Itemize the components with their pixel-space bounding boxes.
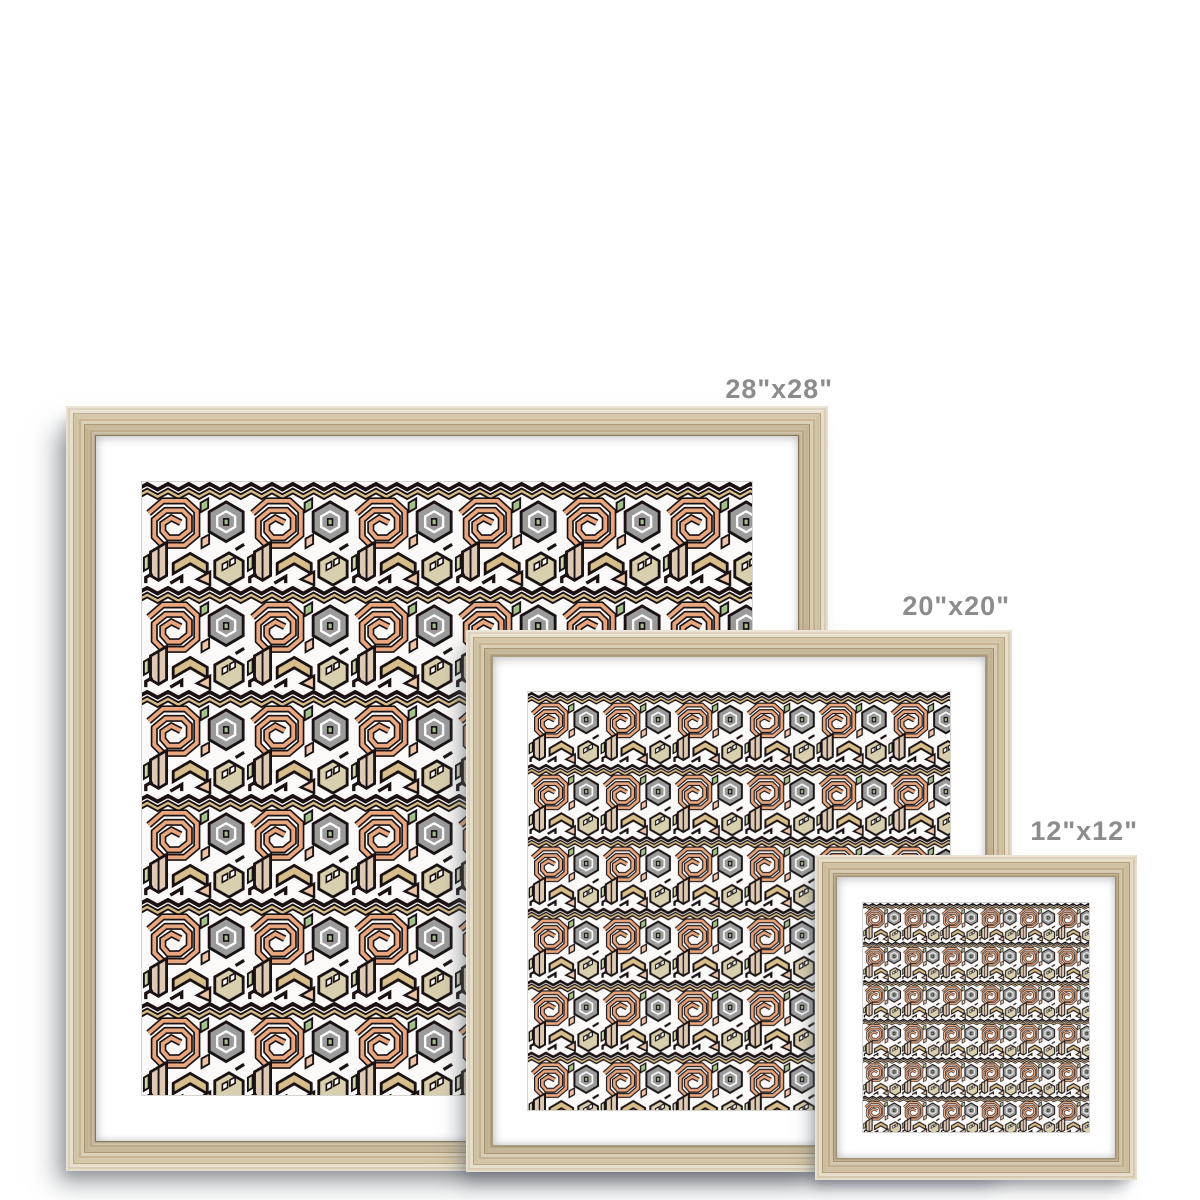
frame-rail-left bbox=[66, 406, 96, 1171]
framed-print-12 bbox=[815, 855, 1137, 1180]
product-mockup-scene[interactable]: 28"x28" 20"x20" 12"x12" bbox=[0, 0, 1200, 1200]
frame-rail-top bbox=[66, 406, 828, 436]
frame-rail-left bbox=[466, 630, 493, 1172]
frame-rail-right bbox=[1115, 855, 1137, 1180]
artist-signature bbox=[1062, 1119, 1080, 1126]
artwork-12 bbox=[863, 903, 1089, 1132]
frame-rail-bottom bbox=[815, 1158, 1137, 1180]
frame-rail-top bbox=[815, 855, 1137, 877]
size-label-20: 20"x20" bbox=[902, 593, 1010, 620]
mat-12 bbox=[837, 877, 1115, 1158]
frame-rail-left bbox=[815, 855, 837, 1180]
size-label-28: 28"x28" bbox=[725, 376, 833, 403]
frame-rail-top bbox=[466, 630, 1012, 657]
size-label-12: 12"x12" bbox=[1030, 818, 1138, 845]
